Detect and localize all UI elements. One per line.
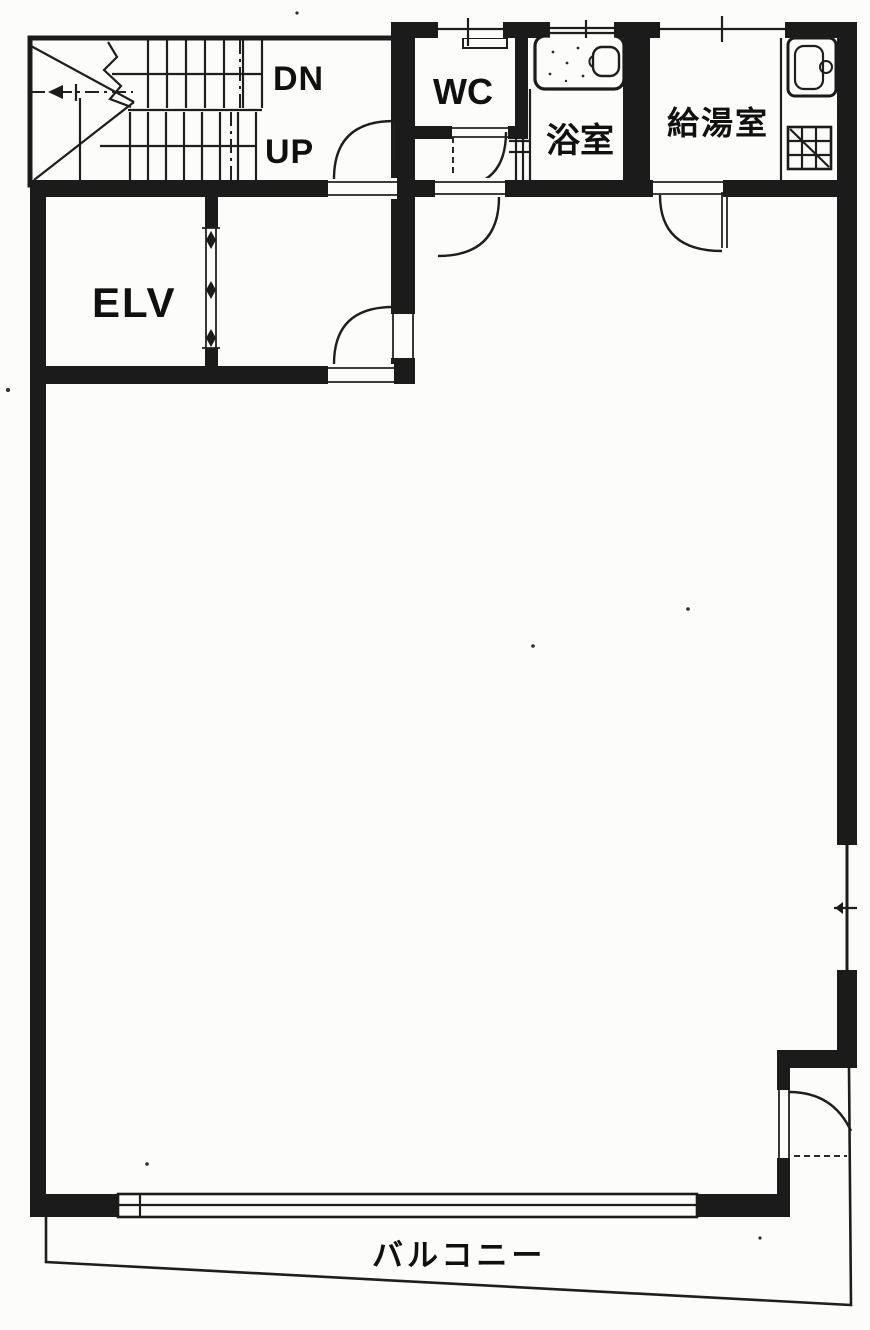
wc-room: WC xyxy=(433,38,529,187)
balcony-door xyxy=(775,1090,851,1158)
wc-right-wall xyxy=(515,22,528,139)
stair-landing-door xyxy=(328,121,397,199)
bathtub-icon xyxy=(535,36,624,89)
kitchenette-door xyxy=(653,178,727,251)
elevator-block: ELV xyxy=(92,195,417,386)
right-wall-lower xyxy=(837,970,857,1050)
wc-door xyxy=(452,124,508,187)
balcony: バルコニー xyxy=(46,1068,851,1305)
right-wall-window xyxy=(834,845,857,970)
stove-icon xyxy=(788,127,831,169)
corridor-door xyxy=(435,178,505,256)
stairs-up-label: UP xyxy=(265,133,314,171)
recess-top-wall xyxy=(777,1050,857,1068)
kitchenette: 給湯室 xyxy=(667,30,836,180)
floor-plan-page: DN UP ELV xyxy=(0,0,870,1330)
stairs-down-label: DN xyxy=(273,60,324,98)
kitchenette-window xyxy=(660,16,785,42)
wc-label: WC xyxy=(433,71,493,112)
outer-walls xyxy=(30,22,857,1217)
bath-window xyxy=(550,20,614,38)
wc-vestibule-partition xyxy=(509,139,529,180)
left-wall xyxy=(30,180,46,1217)
right-wall-upper xyxy=(837,22,857,845)
bathroom: 浴室 xyxy=(530,36,624,182)
stair-landing-lines xyxy=(31,46,134,180)
bottom-wall-left xyxy=(30,1194,118,1217)
toilet-tank-icon xyxy=(463,38,507,48)
balcony-sliding-window xyxy=(118,1194,697,1217)
balcony-label: バルコニー xyxy=(372,1238,546,1273)
kitchen-sink-icon xyxy=(788,38,836,96)
stairwell: DN UP xyxy=(30,38,402,199)
window-center-mark-icon xyxy=(835,902,843,914)
stairwell-border xyxy=(30,38,402,185)
floor-plan-drawing: DN UP ELV xyxy=(0,0,870,1330)
stair-direction-arrow-icon xyxy=(48,85,63,99)
bath-kitchenette-wall xyxy=(623,22,650,196)
elevator-door-icon xyxy=(202,228,220,348)
elevator-label: ELV xyxy=(92,279,177,326)
kitchenette-label: 給湯室 xyxy=(667,105,769,141)
bathroom-label: 浴室 xyxy=(546,121,614,160)
bottom-wall-right xyxy=(697,1194,790,1217)
stair-treads-lower xyxy=(100,110,262,180)
